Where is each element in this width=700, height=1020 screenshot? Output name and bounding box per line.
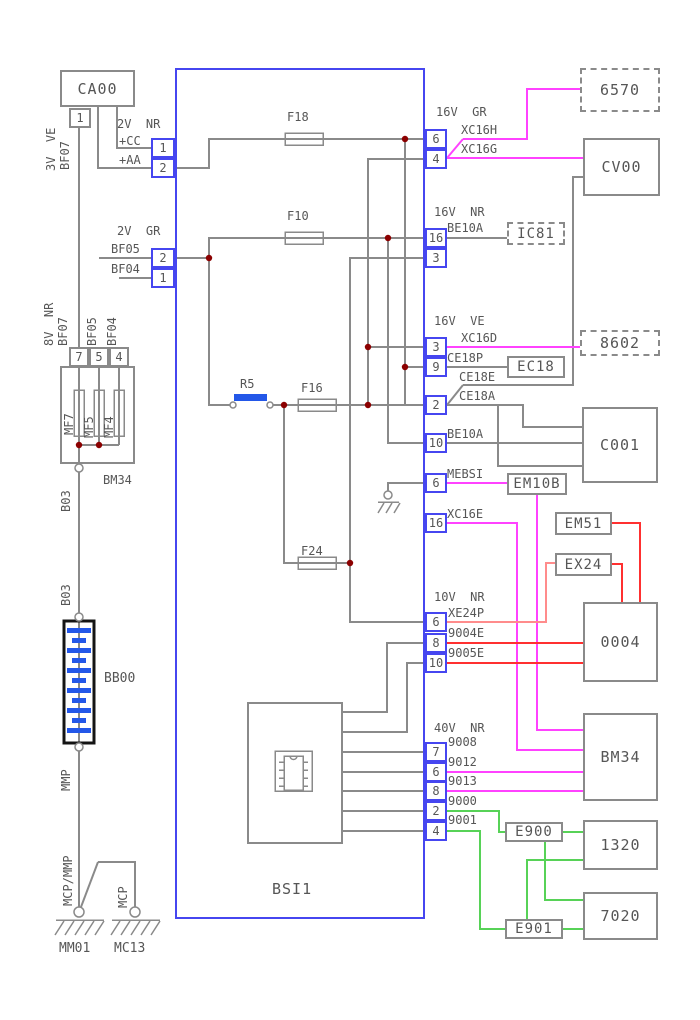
ground-mc13-icon xyxy=(111,920,160,935)
label-16v-ve: 16V VE xyxy=(434,314,485,328)
pin-ca00-1: 1 xyxy=(69,108,91,128)
label-ce18p: CE18P xyxy=(447,351,483,365)
label-xc16g: XC16G xyxy=(461,142,497,156)
component-8602: 8602 xyxy=(580,330,660,356)
label-xc16d: XC16D xyxy=(461,331,497,345)
label-bf04: BF04 xyxy=(111,262,140,276)
component-e900: E900 xyxy=(505,822,563,842)
label-ce18e: CE18E xyxy=(459,370,495,384)
label-3v-ve: 3V VE xyxy=(44,115,58,171)
component-cv00: CV00 xyxy=(583,138,660,196)
pin-right-6-9012: 6 xyxy=(425,762,447,782)
pin-right-16-xc16e: 16 xyxy=(425,513,447,533)
component-0004: 0004 xyxy=(583,602,658,682)
component-bm34: BM34 xyxy=(583,713,658,801)
label-mf5: MF5 xyxy=(82,396,96,438)
label-f18: F18 xyxy=(287,110,309,124)
pin-right-10-be10a: 10 xyxy=(425,433,447,453)
component-em10b: EM10B xyxy=(507,473,567,495)
label-mmp: MMP xyxy=(59,755,73,791)
pin-right-4-9001: 4 xyxy=(425,821,447,841)
label-9004e: 9004E xyxy=(448,626,484,640)
pin-right-16-be10a: 16 xyxy=(425,228,447,248)
label-mebsi: MEBSI xyxy=(447,467,483,481)
component-ca00: CA00 xyxy=(60,70,135,107)
pin-left-3: 2 xyxy=(151,248,175,268)
component-e901: E901 xyxy=(505,919,563,939)
pin-mf4: 4 xyxy=(109,347,129,367)
label-bf07: BF07 xyxy=(56,298,70,346)
pin-right-6-mebsi: 6 xyxy=(425,473,447,493)
label-bf04-vertical: BF04 xyxy=(105,298,119,346)
pin-mf7: 7 xyxy=(69,347,89,367)
label-9005e: 9005E xyxy=(448,646,484,660)
pin-right-9-ce18p: 9 xyxy=(425,357,447,377)
label-mf4: MF4 xyxy=(102,396,116,438)
label-bf07-top: BF07 xyxy=(58,120,72,170)
wiring-diagram: CA00 6570 CV00 IC81 8602 EC18 C001 EM10B… xyxy=(0,0,700,1020)
label-ce18a: CE18A xyxy=(459,389,495,403)
label-plus-cc: +CC xyxy=(119,134,141,148)
label-bsi1: BSI1 xyxy=(272,880,312,898)
pin-right-10-9005e: 10 xyxy=(425,653,447,673)
label-b03-upper: B03 xyxy=(59,478,73,512)
pin-right-3: 3 xyxy=(425,248,447,268)
label-bm34-fusebox: BM34 xyxy=(103,473,132,487)
label-8v-nr: 8V NR xyxy=(42,294,56,346)
label-16v-nr: 16V NR xyxy=(434,205,485,219)
component-em51: EM51 xyxy=(555,512,612,535)
component-7020: 7020 xyxy=(583,892,658,940)
label-16v-gr: 16V GR xyxy=(436,105,487,119)
label-bf05-vertical: BF05 xyxy=(85,298,99,346)
label-b03-lower: B03 xyxy=(59,572,73,606)
label-xe24p: XE24P xyxy=(448,606,484,620)
label-plus-aa: +AA xyxy=(119,153,141,167)
component-ex24: EX24 xyxy=(555,553,612,576)
component-ec18: EC18 xyxy=(507,356,565,378)
bsi1-unit-box xyxy=(175,68,425,919)
pin-right-4-xc16g: 4 xyxy=(425,149,447,169)
pin-right-3-xc16d: 3 xyxy=(425,337,447,357)
label-mc13: MC13 xyxy=(114,941,145,956)
label-f24: F24 xyxy=(301,544,323,558)
pin-right-2-9000: 2 xyxy=(425,801,447,821)
label-mm01: MM01 xyxy=(59,941,90,956)
pin-right-8-9013: 8 xyxy=(425,781,447,801)
label-40v-nr: 40V NR xyxy=(434,721,485,735)
label-9008: 9008 xyxy=(448,735,477,749)
label-f10: F10 xyxy=(287,209,309,223)
component-1320: 1320 xyxy=(583,820,658,870)
label-mf7: MF7 xyxy=(62,393,76,435)
label-9012: 9012 xyxy=(448,755,477,769)
label-f16: F16 xyxy=(301,381,323,395)
label-xc16e: XC16E xyxy=(447,507,483,521)
component-ic81: IC81 xyxy=(507,222,565,245)
pin-right-2-ce18a: 2 xyxy=(425,395,447,415)
pin-right-7-9008: 7 xyxy=(425,742,447,762)
component-c001: C001 xyxy=(582,407,658,483)
label-r5: R5 xyxy=(240,377,254,391)
pin-right-8-9004e: 8 xyxy=(425,633,447,653)
pin-left-1: 1 xyxy=(151,138,175,158)
label-mcp-mmp: MCP/MMP xyxy=(61,842,75,906)
label-bb00: BB00 xyxy=(104,671,135,686)
label-xc16h: XC16H xyxy=(461,123,497,137)
pin-mf5: 5 xyxy=(89,347,109,367)
label-mcp: MCP xyxy=(116,878,130,908)
component-6570: 6570 xyxy=(580,68,660,112)
label-2v-nr: 2V NR xyxy=(117,117,160,131)
label-bf05: BF05 xyxy=(111,242,140,256)
label-2v-gr: 2V GR xyxy=(117,224,160,238)
pin-right-6-xc16h: 6 xyxy=(425,129,447,149)
label-9013: 9013 xyxy=(448,774,477,788)
pin-left-2: 2 xyxy=(151,158,175,178)
label-10v-nr: 10V NR xyxy=(434,590,485,604)
label-be10a-top: BE10A xyxy=(447,221,483,235)
label-9000: 9000 xyxy=(448,794,477,808)
label-be10a-mid: BE10A xyxy=(447,427,483,441)
pin-left-4: 1 xyxy=(151,268,175,288)
ground-mm01-icon xyxy=(55,920,104,935)
label-9001: 9001 xyxy=(448,813,477,827)
pin-right-6-xe24p: 6 xyxy=(425,612,447,632)
